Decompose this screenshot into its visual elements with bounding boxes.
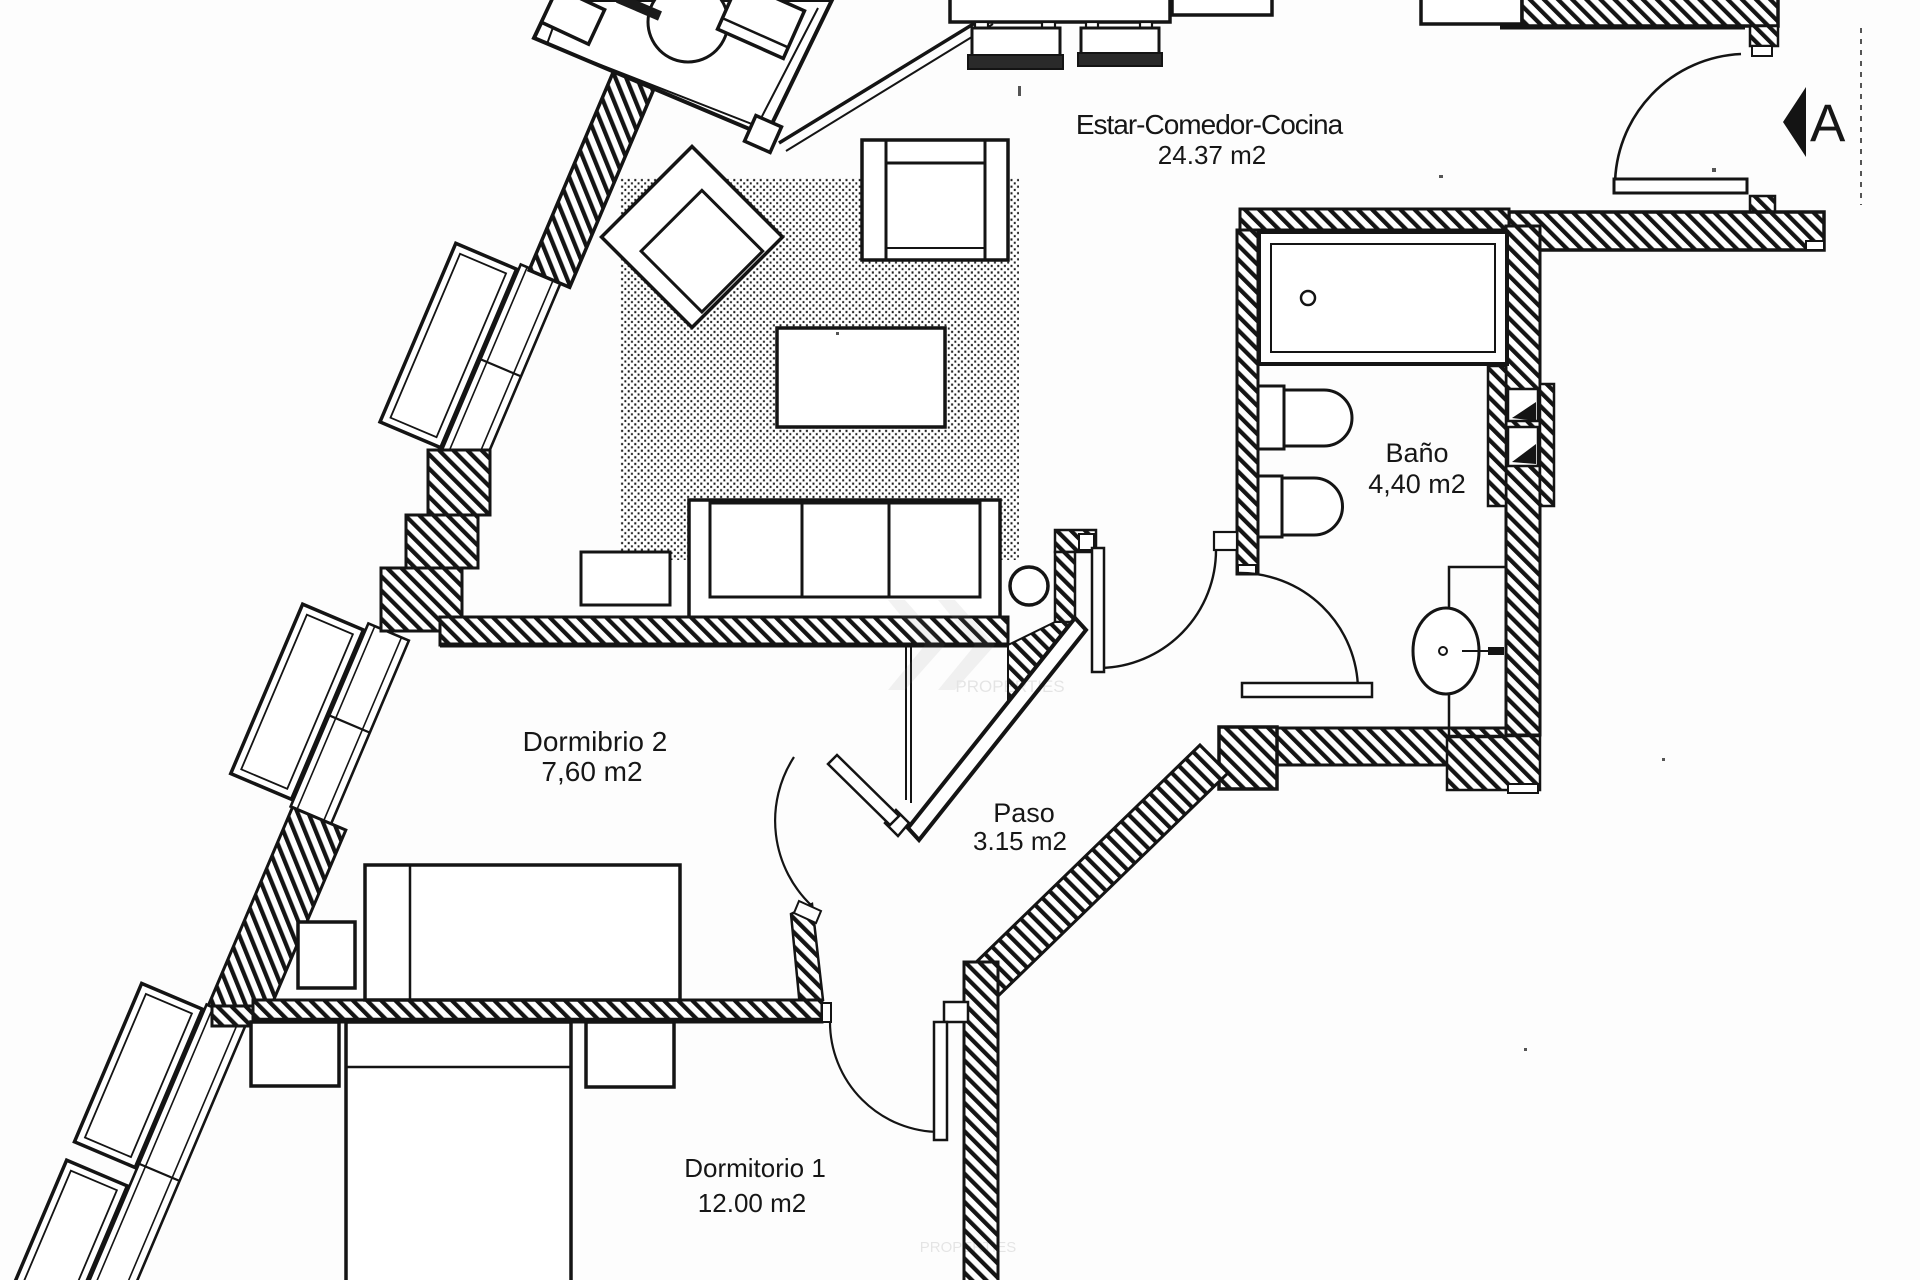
svg-text:7,60 m2: 7,60 m2 [541, 756, 642, 787]
svg-text:Dormibrio 2: Dormibrio 2 [523, 726, 668, 757]
svg-text:Estar-Comedor-Cocina: Estar-Comedor-Cocina [1076, 109, 1344, 140]
svg-text:Baño: Baño [1385, 438, 1448, 468]
svg-text:3.15 m2: 3.15 m2 [973, 826, 1067, 856]
svg-text:Dormitorio 1: Dormitorio 1 [684, 1153, 826, 1183]
svg-text:PROPERTIES: PROPERTIES [955, 677, 1064, 696]
svg-text:4,40 m2: 4,40 m2 [1368, 469, 1466, 499]
svg-text:12.00 m2: 12.00 m2 [698, 1188, 806, 1218]
svg-text:PROPERTIES: PROPERTIES [920, 1239, 1016, 1256]
svg-text:24.37 m2: 24.37 m2 [1158, 140, 1266, 170]
svg-text:Paso: Paso [993, 798, 1055, 828]
svg-text:A: A [1810, 94, 1846, 153]
